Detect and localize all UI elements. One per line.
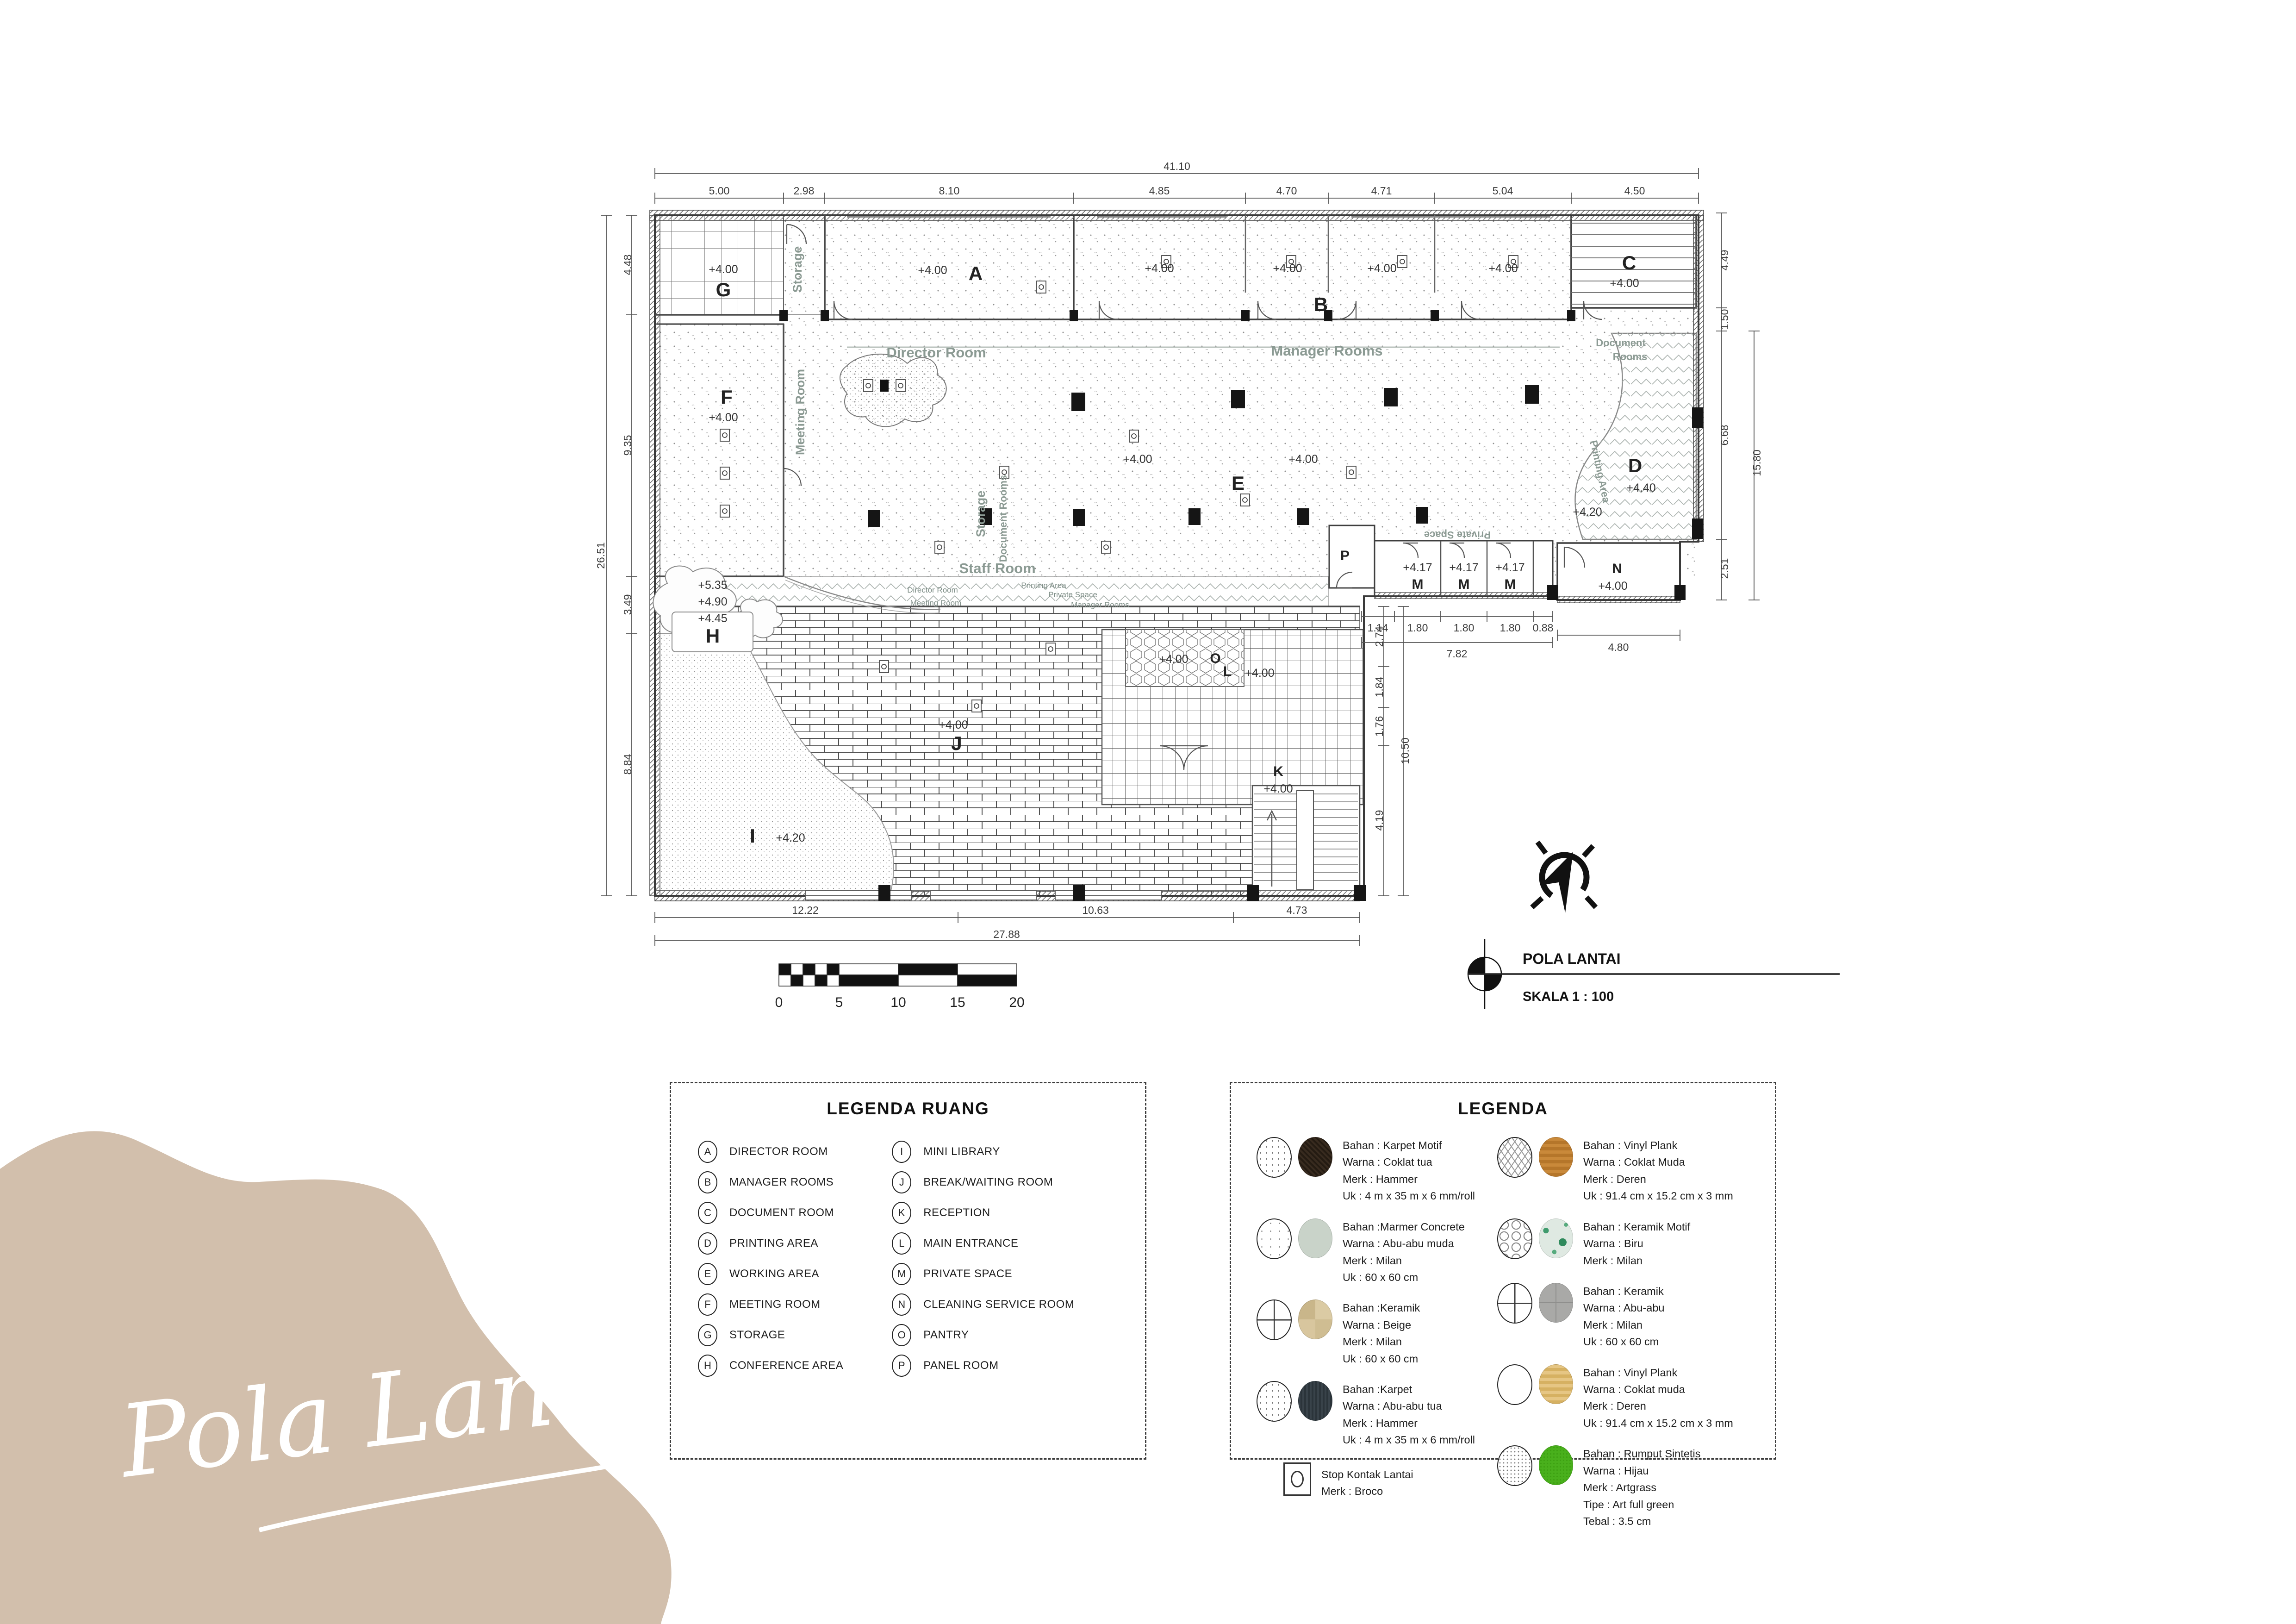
svg-text:2.51: 2.51 bbox=[1718, 558, 1730, 579]
svg-text:+4.17: +4.17 bbox=[1449, 561, 1478, 574]
svg-text:M: M bbox=[1458, 577, 1470, 592]
swatch-marmer bbox=[1298, 1218, 1332, 1258]
svg-text:1.50: 1.50 bbox=[1718, 309, 1730, 330]
svg-text:P: P bbox=[1340, 548, 1350, 563]
svg-text:+4.00: +4.00 bbox=[1488, 262, 1518, 275]
svg-text:J: J bbox=[951, 732, 962, 754]
pattern-marble-icon bbox=[1257, 1218, 1292, 1259]
legend-item-a: ADIRECTOR ROOM bbox=[698, 1140, 843, 1163]
room-letter-badge: D bbox=[698, 1232, 717, 1255]
north-arrow-icon bbox=[1532, 842, 1596, 913]
svg-text:4.71: 4.71 bbox=[1371, 185, 1392, 197]
svg-text:8.10: 8.10 bbox=[939, 185, 960, 197]
svg-text:Rooms: Rooms bbox=[1613, 351, 1648, 362]
svg-text:1.80: 1.80 bbox=[1500, 622, 1521, 634]
svg-text:+4.00: +4.00 bbox=[1273, 262, 1302, 275]
svg-text:Manager Rooms: Manager Rooms bbox=[1071, 600, 1129, 609]
room-letter-badge: N bbox=[892, 1293, 911, 1316]
legend-item-m: MPRIVATE SPACE bbox=[892, 1262, 1074, 1286]
svg-text:A: A bbox=[969, 262, 983, 284]
swatch-rumput bbox=[1539, 1445, 1573, 1485]
room-letter-badge: A bbox=[698, 1141, 717, 1163]
svg-text:2.74: 2.74 bbox=[1373, 626, 1385, 647]
svg-text:+4.20: +4.20 bbox=[1573, 506, 1602, 518]
material-rumput-sintetis: Bahan : Rumput SintetisWarna : HijauMerk… bbox=[1497, 1445, 1733, 1530]
room-letter-badge: L bbox=[892, 1232, 911, 1255]
floor-plan: 41.10 5.00 2.98 8.10 4.85 4.70 4.71 5.04… bbox=[588, 148, 1782, 972]
svg-text:Meeting Room: Meeting Room bbox=[793, 369, 807, 455]
pattern-cross-icon bbox=[1497, 1283, 1532, 1324]
title-block: POLA LANTAI SKALA 1 : 100 bbox=[1449, 935, 1847, 1018]
svg-text:C: C bbox=[1622, 252, 1636, 274]
svg-text:N: N bbox=[1612, 561, 1622, 576]
svg-text:Document: Document bbox=[1596, 337, 1646, 349]
svg-text:+4.00: +4.00 bbox=[1245, 667, 1274, 680]
svg-text:Staff Room: Staff Room bbox=[959, 560, 1035, 576]
svg-text:+4.00: +4.00 bbox=[1159, 653, 1188, 666]
drawing-scale: SKALA 1 : 100 bbox=[1523, 989, 1614, 1004]
svg-text:F: F bbox=[721, 386, 733, 408]
svg-text:27.88: 27.88 bbox=[993, 928, 1020, 940]
stop-kontak-icon bbox=[1283, 1462, 1311, 1496]
svg-text:1.76: 1.76 bbox=[1373, 716, 1385, 737]
svg-text:+4.17: +4.17 bbox=[1495, 561, 1524, 574]
svg-text:Document Rooms: Document Rooms bbox=[997, 475, 1009, 562]
svg-text:4.19: 4.19 bbox=[1373, 810, 1385, 831]
legend-item-p: PPANEL ROOM bbox=[892, 1354, 1074, 1377]
svg-text:10: 10 bbox=[890, 995, 906, 1010]
svg-text:4.50: 4.50 bbox=[1624, 185, 1645, 197]
material-legend-col-1: Bahan : Karpet MotifWarna : Coklat tuaMe… bbox=[1257, 1137, 1497, 1530]
legend-item-o: OPANTRY bbox=[892, 1323, 1074, 1347]
pattern-hex-icon bbox=[1497, 1218, 1532, 1259]
svg-text:+4.20: +4.20 bbox=[776, 831, 805, 844]
legend-item-e: EWORKING AREA bbox=[698, 1262, 843, 1286]
room-letter-badge: H bbox=[698, 1355, 717, 1377]
svg-text:1.84: 1.84 bbox=[1373, 676, 1385, 697]
legend-item-l: LMAIN ENTRANCE bbox=[892, 1231, 1074, 1255]
svg-text:+4.90: +4.90 bbox=[698, 595, 727, 608]
svg-text:Storage: Storage bbox=[974, 491, 988, 537]
svg-text:B: B bbox=[1314, 294, 1328, 315]
room-legend-title: LEGENDA RUANG bbox=[671, 1099, 1145, 1118]
svg-text:15.80: 15.80 bbox=[1751, 450, 1763, 476]
svg-text:Printing Area: Printing Area bbox=[1021, 581, 1066, 590]
svg-text:Director Room: Director Room bbox=[886, 344, 986, 361]
room-letter-badge: M bbox=[892, 1263, 911, 1285]
room-letter-badge: G bbox=[698, 1324, 717, 1346]
svg-text:2.98: 2.98 bbox=[794, 185, 815, 197]
legend-item-k: KRECEPTION bbox=[892, 1201, 1074, 1224]
svg-text:1.80: 1.80 bbox=[1407, 622, 1428, 634]
svg-text:7.82: 7.82 bbox=[1447, 648, 1468, 660]
room-letter-badge: O bbox=[892, 1324, 911, 1346]
decorative-blob: Pola Lantai bbox=[0, 1065, 703, 1624]
material-keramik-beige: Bahan :KeramikWarna : BeigeMerk : MilanU… bbox=[1257, 1299, 1497, 1367]
svg-text:0.88: 0.88 bbox=[1533, 622, 1554, 634]
swatch-keramik-abu bbox=[1539, 1283, 1573, 1323]
swatch-keramik-beige bbox=[1298, 1299, 1332, 1339]
svg-text:4.73: 4.73 bbox=[1287, 904, 1307, 916]
room-legend-col-1: ADIRECTOR ROOM BMANAGER ROOMS CDOCUMENT … bbox=[698, 1140, 843, 1377]
room-legend-box: LEGENDA RUANG ADIRECTOR ROOM BMANAGER RO… bbox=[670, 1082, 1146, 1460]
svg-text:+4.00: +4.00 bbox=[1598, 580, 1627, 593]
svg-text:5: 5 bbox=[835, 995, 843, 1010]
svg-text:+4.00: +4.00 bbox=[709, 411, 738, 424]
material-vinyl-plank-1: Bahan : Vinyl PlankWarna : Coklat MudaMe… bbox=[1497, 1137, 1733, 1205]
legend-item-i: IMINI LIBRARY bbox=[892, 1140, 1074, 1163]
material-legend-title: LEGENDA bbox=[1231, 1099, 1775, 1118]
svg-text:M: M bbox=[1505, 577, 1516, 592]
svg-text:41.10: 41.10 bbox=[1164, 160, 1190, 172]
svg-text:Storage: Storage bbox=[790, 246, 804, 293]
svg-text:D: D bbox=[1628, 455, 1642, 476]
svg-text:G: G bbox=[716, 279, 731, 300]
material-stop-kontak: Stop Kontak LantaiMerk : Broco bbox=[1283, 1462, 1497, 1500]
swatch-vinyl-2 bbox=[1539, 1364, 1573, 1404]
legend-item-h: HCONFERENCE AREA bbox=[698, 1354, 843, 1377]
svg-text:4.49: 4.49 bbox=[1718, 250, 1730, 271]
svg-text:+4.00: +4.00 bbox=[1123, 453, 1152, 466]
material-legend-box: LEGENDA Bahan : Karpet MotifWarna : Cokl… bbox=[1230, 1082, 1776, 1460]
pattern-plain-icon bbox=[1497, 1364, 1532, 1405]
svg-text:+4.17: +4.17 bbox=[1403, 561, 1432, 574]
svg-text:H: H bbox=[706, 625, 720, 647]
pattern-chevron-icon bbox=[1497, 1137, 1532, 1178]
drawing-title: POLA LANTAI bbox=[1523, 950, 1621, 967]
svg-text:I: I bbox=[750, 825, 755, 847]
material-marmer-concrete: Bahan :Marmer ConcreteWarna : Abu-abu mu… bbox=[1257, 1218, 1497, 1286]
svg-text:+4.00: +4.00 bbox=[709, 263, 738, 276]
room-letter-badge: J bbox=[892, 1171, 911, 1193]
svg-text:M: M bbox=[1412, 577, 1424, 592]
meeting-room-floor bbox=[655, 324, 784, 576]
room-letter-badge: B bbox=[698, 1171, 717, 1193]
material-legend-col-2: Bahan : Vinyl PlankWarna : Coklat MudaMe… bbox=[1497, 1137, 1733, 1530]
swatch-vinyl-1 bbox=[1539, 1137, 1573, 1177]
room-letter-badge: C bbox=[698, 1202, 717, 1224]
floor-finishes bbox=[655, 215, 1696, 896]
svg-text:+4.00: +4.00 bbox=[1145, 262, 1174, 275]
svg-text:+4.00: +4.00 bbox=[1263, 782, 1293, 795]
svg-text:3.49: 3.49 bbox=[622, 594, 634, 615]
svg-text:4.70: 4.70 bbox=[1276, 185, 1297, 197]
svg-text:Private Space: Private Space bbox=[1424, 529, 1491, 541]
svg-text:4.80: 4.80 bbox=[1608, 641, 1629, 653]
material-karpet-motif: Bahan : Karpet MotifWarna : Coklat tuaMe… bbox=[1257, 1137, 1497, 1205]
svg-text:4.85: 4.85 bbox=[1149, 185, 1170, 197]
svg-text:10.50: 10.50 bbox=[1399, 737, 1411, 764]
page: { "script_title": "Pola Lantai", "title_… bbox=[0, 0, 2296, 1624]
svg-text:Director Room: Director Room bbox=[907, 586, 958, 594]
legend-item-n: NCLEANING SERVICE ROOM bbox=[892, 1293, 1074, 1316]
legend-item-g: GSTORAGE bbox=[698, 1323, 843, 1347]
svg-text:K: K bbox=[1273, 764, 1283, 779]
svg-text:+5.35: +5.35 bbox=[698, 579, 727, 592]
room-letter-badge: P bbox=[892, 1355, 911, 1377]
svg-text:20: 20 bbox=[1009, 995, 1024, 1010]
svg-text:+4.00: +4.00 bbox=[1367, 262, 1396, 275]
legend-item-j: JBREAK/WAITING ROOM bbox=[892, 1170, 1074, 1194]
legend-item-b: BMANAGER ROOMS bbox=[698, 1170, 843, 1194]
svg-text:12.22: 12.22 bbox=[792, 904, 819, 916]
pattern-dots-icon bbox=[1257, 1381, 1292, 1422]
material-keramik-abu: Bahan : KeramikWarna : Abu-abuMerk : Mil… bbox=[1497, 1283, 1733, 1350]
svg-text:+4.00: +4.00 bbox=[939, 718, 968, 731]
svg-text:26.51: 26.51 bbox=[595, 542, 607, 569]
svg-text:15: 15 bbox=[950, 995, 965, 1010]
material-keramik-motif: Bahan : Keramik MotifWarna : BiruMerk : … bbox=[1497, 1218, 1733, 1269]
svg-text:Meeting Room: Meeting Room bbox=[910, 599, 962, 607]
stairs bbox=[1252, 786, 1360, 896]
svg-text:9.35: 9.35 bbox=[622, 435, 634, 456]
director-room-floor bbox=[825, 215, 1074, 319]
svg-text:Manager Rooms: Manager Rooms bbox=[1271, 343, 1382, 359]
swatch-karpet-motif bbox=[1298, 1137, 1332, 1177]
svg-text:0: 0 bbox=[775, 995, 783, 1010]
pattern-dots-icon bbox=[1257, 1137, 1292, 1178]
panel-room-box bbox=[1329, 525, 1375, 588]
legend-item-c: CDOCUMENT ROOM bbox=[698, 1201, 843, 1224]
room-legend-col-2: IMINI LIBRARY JBREAK/WAITING ROOM KRECEP… bbox=[892, 1140, 1074, 1377]
pattern-dense-dots-icon bbox=[1497, 1445, 1532, 1486]
svg-text:E: E bbox=[1232, 472, 1244, 494]
svg-text:5.04: 5.04 bbox=[1493, 185, 1513, 197]
swatch-keramik-motif bbox=[1539, 1218, 1573, 1258]
svg-text:+4.40: +4.40 bbox=[1626, 481, 1655, 494]
svg-text:10.63: 10.63 bbox=[1082, 904, 1109, 916]
svg-text:4.48: 4.48 bbox=[622, 255, 634, 275]
svg-text:Private Space: Private Space bbox=[1048, 590, 1097, 599]
swatch-karpet-abu bbox=[1298, 1381, 1332, 1421]
svg-text:+4.00: +4.00 bbox=[918, 264, 947, 277]
svg-text:1.80: 1.80 bbox=[1454, 622, 1475, 634]
svg-text:+4.00: +4.00 bbox=[1288, 453, 1318, 466]
material-karpet-abu: Bahan :KarpetWarna : Abu-abu tuaMerk : H… bbox=[1257, 1381, 1497, 1449]
svg-text:+4.45: +4.45 bbox=[698, 612, 727, 625]
room-letter-badge: E bbox=[698, 1263, 717, 1285]
svg-text:O: O bbox=[1210, 651, 1220, 666]
svg-text:5.00: 5.00 bbox=[709, 185, 730, 197]
legend-item-d: DPRINTING AREA bbox=[698, 1231, 843, 1255]
material-vinyl-plank-2: Bahan : Vinyl PlankWarna : Coklat mudaMe… bbox=[1497, 1364, 1733, 1432]
room-letter-badge: K bbox=[892, 1202, 911, 1224]
svg-text:6.68: 6.68 bbox=[1718, 425, 1730, 446]
scale-bar: 0 5 10 15 20 bbox=[768, 958, 1037, 1018]
room-letter-badge: F bbox=[698, 1293, 717, 1316]
legend-item-f: FMEETING ROOM bbox=[698, 1293, 843, 1316]
svg-text:L: L bbox=[1223, 664, 1232, 679]
pattern-cross-icon bbox=[1257, 1299, 1292, 1340]
svg-text:8.84: 8.84 bbox=[622, 754, 634, 775]
svg-text:+4.00: +4.00 bbox=[1610, 277, 1639, 290]
room-letter-badge: I bbox=[892, 1141, 911, 1163]
